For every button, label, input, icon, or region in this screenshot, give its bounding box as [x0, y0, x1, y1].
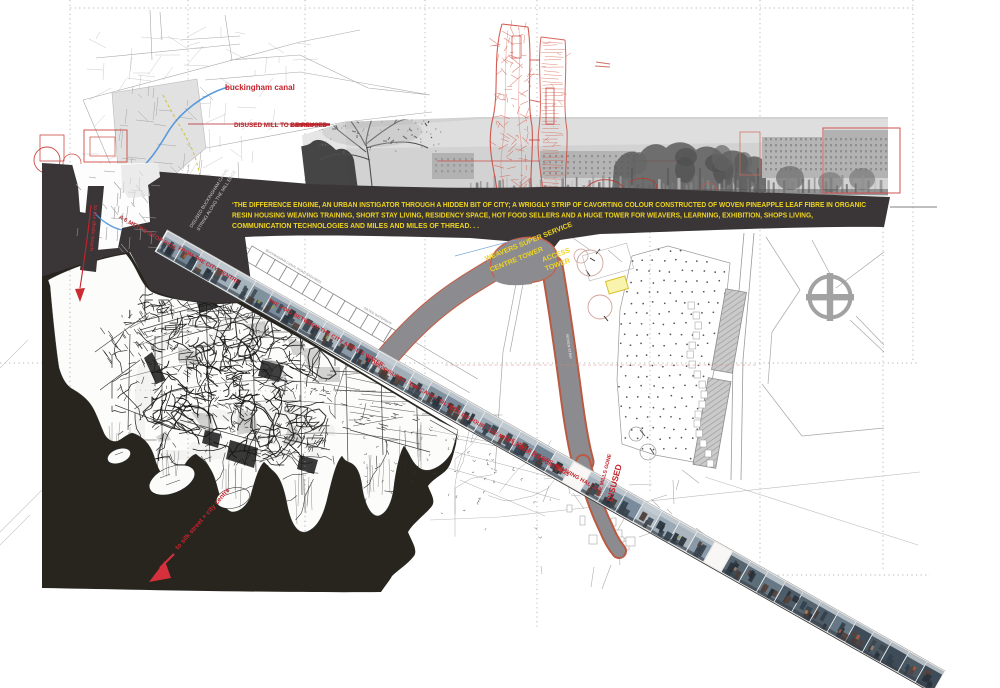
svg-text:‘THE DIFFERENCE ENGINE, AN URB: ‘THE DIFFERENCE ENGINE, AN URBAN INSTIGA… [232, 200, 867, 209]
svg-text:MOCK-UP: MOCK-UP [290, 123, 315, 129]
svg-text:COMMUNICATION TECHNOLOGIES AND: COMMUNICATION TECHNOLOGIES AND MILES AND… [232, 221, 479, 230]
svg-text:buckingham canal: buckingham canal [225, 83, 295, 92]
svg-text:RESIN HOUSING WEAVING TRAINING: RESIN HOUSING WEAVING TRAINING, SHORT ST… [232, 211, 813, 220]
